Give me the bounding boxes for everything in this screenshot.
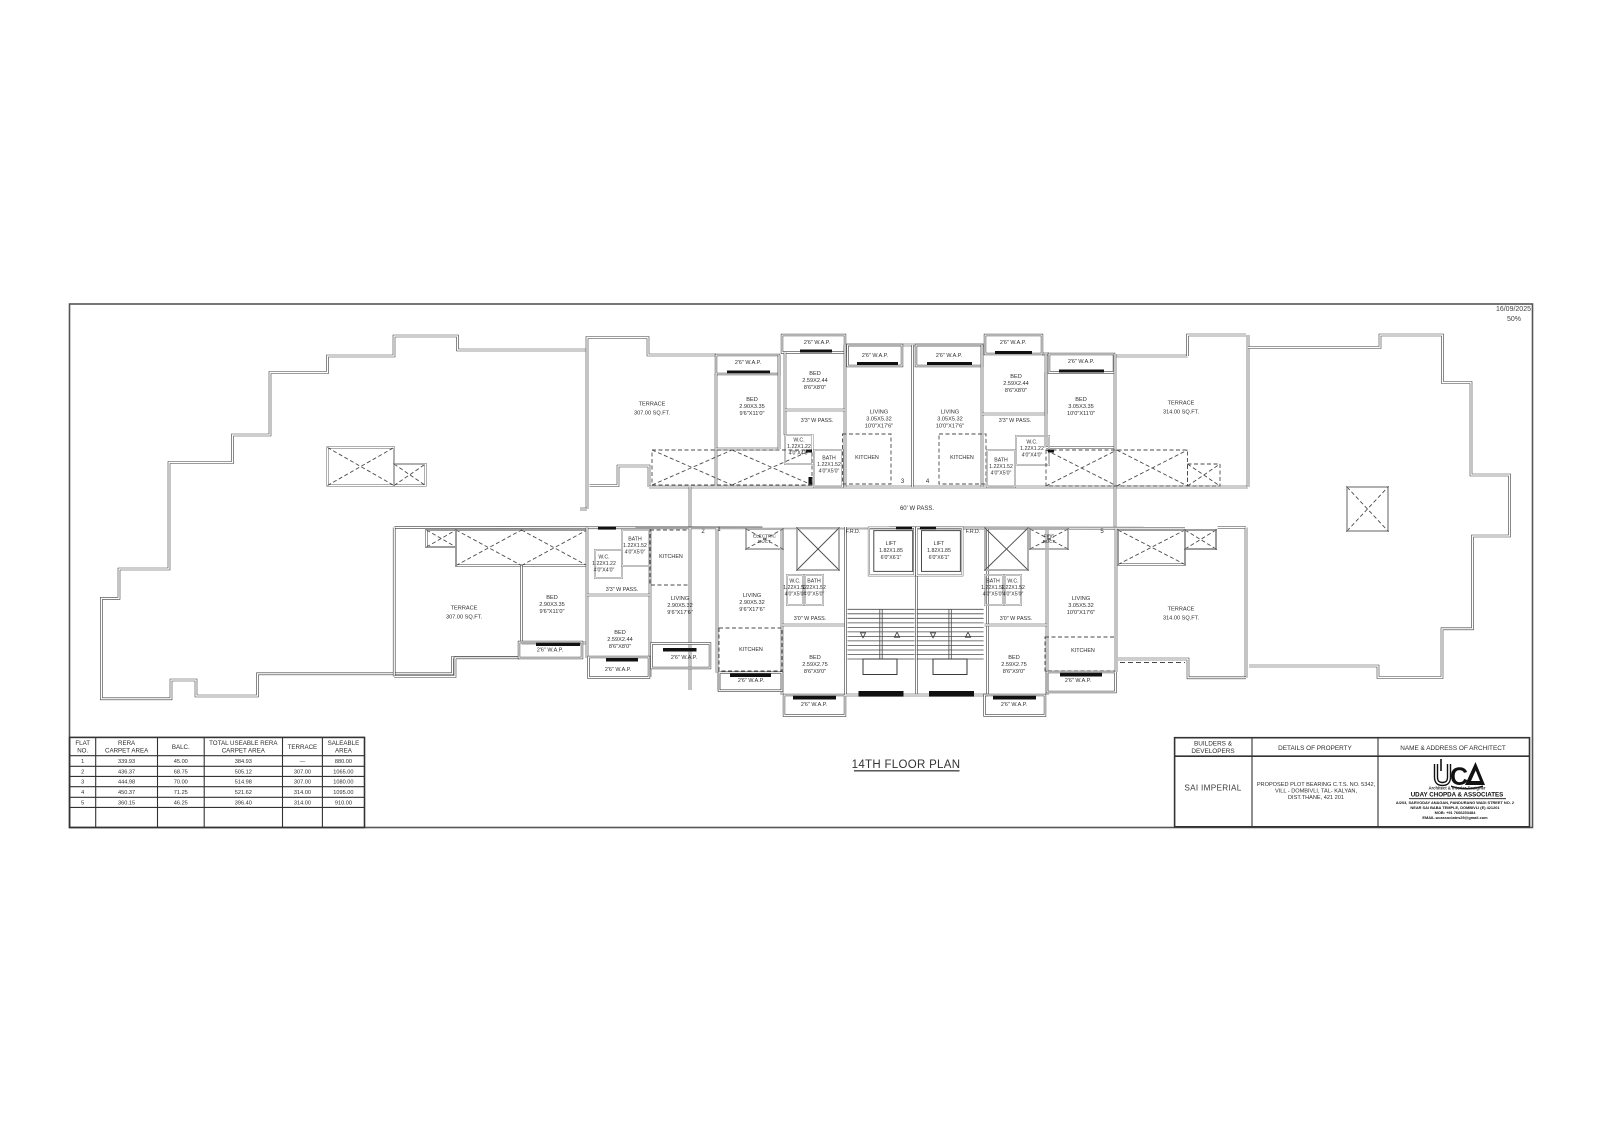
- svg-text:8'6"X9'0": 8'6"X9'0": [804, 669, 826, 675]
- svg-text:314.00: 314.00: [294, 790, 311, 796]
- svg-text:2.59X2.75: 2.59X2.75: [1001, 662, 1027, 668]
- svg-text:2'6" W.A.P.: 2'6" W.A.P.: [735, 360, 761, 366]
- svg-text:8'6"X8'0": 8'6"X8'0": [804, 385, 826, 391]
- svg-text:1.82X1.85: 1.82X1.85: [879, 548, 903, 554]
- svg-text:46.25: 46.25: [174, 800, 188, 806]
- svg-text:8'6"X8'0": 8'6"X8'0": [1005, 388, 1027, 394]
- svg-text:BED: BED: [809, 655, 821, 661]
- svg-text:10'0"X17'6": 10'0"X17'6": [1067, 610, 1096, 616]
- svg-text:1.22X1.52: 1.22X1.52: [1001, 585, 1025, 591]
- svg-text:2.59X2.44: 2.59X2.44: [1003, 381, 1029, 387]
- svg-text:3: 3: [81, 780, 84, 786]
- svg-text:BED: BED: [746, 397, 758, 403]
- svg-text:2.90X3.35: 2.90X3.35: [739, 404, 765, 410]
- svg-text:307.00 SQ.FT.: 307.00 SQ.FT.: [634, 411, 671, 417]
- svg-text:10'0"X11'0": 10'0"X11'0": [1067, 411, 1095, 417]
- svg-text:Architect & Interior Designer: Architect & Interior Designer: [1428, 786, 1485, 791]
- svg-text:307.00: 307.00: [294, 769, 311, 775]
- svg-text:TERRACE: TERRACE: [639, 402, 666, 408]
- svg-text:BED: BED: [809, 371, 821, 377]
- svg-text:396.40: 396.40: [235, 800, 252, 806]
- svg-text:2.90X5.32: 2.90X5.32: [667, 603, 693, 609]
- svg-text:4'0"X5'0": 4'0"X5'0": [625, 549, 646, 555]
- svg-text:CARPET AREA: CARPET AREA: [105, 748, 149, 755]
- svg-text:1.82X1.85: 1.82X1.85: [927, 548, 951, 554]
- svg-text:KITCHEN: KITCHEN: [659, 554, 683, 560]
- svg-text:60' W PASS.: 60' W PASS.: [900, 506, 934, 512]
- svg-text:W.C.: W.C.: [1007, 579, 1018, 585]
- svg-text:FIRE: FIRE: [1044, 534, 1054, 539]
- svg-text:2'6" W.A.P.: 2'6" W.A.P.: [1065, 678, 1091, 684]
- svg-text:1: 1: [81, 759, 84, 765]
- svg-text:339.93: 339.93: [118, 759, 135, 765]
- svg-text:514.98: 514.98: [235, 780, 252, 786]
- svg-text:2'6" W.A.P.: 2'6" W.A.P.: [862, 353, 888, 359]
- svg-text:LIFT: LIFT: [886, 541, 897, 547]
- svg-text:360.15: 360.15: [118, 800, 135, 806]
- svg-text:2'6" W.A.P.: 2'6" W.A.P.: [671, 655, 697, 661]
- svg-text:BATH: BATH: [822, 456, 836, 462]
- svg-text:2'6" W.A.P.: 2'6" W.A.P.: [537, 648, 563, 654]
- svg-text:1.22X1.52: 1.22X1.52: [802, 585, 826, 591]
- svg-text:SAI IMPERIAL: SAI IMPERIAL: [1184, 784, 1241, 793]
- svg-text:314.00 SQ.FT.: 314.00 SQ.FT.: [1163, 616, 1200, 622]
- svg-text:2'6" W.A.P.: 2'6" W.A.P.: [605, 667, 631, 673]
- svg-text:BED: BED: [546, 595, 558, 601]
- svg-text:5: 5: [81, 800, 84, 806]
- svg-text:3'0" W PASS.: 3'0" W PASS.: [1000, 616, 1033, 622]
- svg-text:BED: BED: [1008, 655, 1020, 661]
- svg-text:2: 2: [81, 769, 84, 775]
- svg-text:2'6" W.A.P.: 2'6" W.A.P.: [1000, 340, 1026, 346]
- svg-text:9'6"X11'0": 9'6"X11'0": [740, 411, 765, 417]
- svg-text:AREA: AREA: [335, 748, 353, 755]
- svg-text:10'0"X17'6": 10'0"X17'6": [936, 424, 965, 430]
- svg-text:LIVING: LIVING: [671, 596, 689, 602]
- svg-text:4'0"X5'0": 4'0"X5'0": [1003, 591, 1024, 597]
- svg-text:4'0"X5'0": 4'0"X5'0": [983, 591, 1004, 597]
- svg-text:910.00: 910.00: [335, 800, 352, 806]
- svg-text:DUCT: DUCT: [1043, 539, 1056, 544]
- svg-text:F.R.D.: F.R.D.: [846, 529, 860, 535]
- svg-text:FLAT: FLAT: [75, 740, 90, 747]
- svg-text:1.22X1.52: 1.22X1.52: [817, 462, 841, 468]
- svg-text:1095.00: 1095.00: [333, 790, 353, 796]
- svg-text:4'0"X4'0": 4'0"X4'0": [594, 567, 615, 573]
- svg-text:LIVING: LIVING: [870, 409, 888, 415]
- svg-text:KITCHEN: KITCHEN: [1071, 648, 1095, 654]
- svg-text:450.37: 450.37: [118, 790, 135, 796]
- svg-text:LIVING: LIVING: [941, 409, 959, 415]
- svg-text:2.59X2.44: 2.59X2.44: [802, 378, 828, 384]
- svg-text:RERA: RERA: [118, 740, 136, 747]
- svg-text:9'6"X11'0": 9'6"X11'0": [540, 609, 565, 615]
- svg-text:NAME & ADDRESS OF ARCHITECT: NAME & ADDRESS OF ARCHITECT: [1400, 745, 1506, 752]
- svg-text:4'0"X5'0": 4'0"X5'0": [991, 470, 1012, 476]
- svg-text:9'6"X17'6": 9'6"X17'6": [667, 610, 692, 616]
- svg-text:68.75: 68.75: [174, 769, 188, 775]
- svg-text:4'0"X5'0": 4'0"X5'0": [785, 591, 806, 597]
- svg-text:KITCHEN: KITCHEN: [855, 455, 879, 461]
- svg-text:14TH FLOOR PLAN: 14TH FLOOR PLAN: [852, 759, 961, 771]
- svg-text:KITCHEN: KITCHEN: [739, 647, 763, 653]
- svg-text:6'0"X6'1": 6'0"X6'1": [881, 555, 902, 561]
- svg-text:BATH: BATH: [807, 579, 821, 585]
- svg-text:CARPET AREA: CARPET AREA: [222, 748, 266, 755]
- svg-text:1.22X1.52: 1.22X1.52: [623, 543, 647, 549]
- svg-text:1.22X1.22: 1.22X1.22: [1020, 446, 1044, 452]
- svg-text:TERRACE: TERRACE: [288, 744, 318, 751]
- svg-text:LIVING: LIVING: [1072, 596, 1090, 602]
- svg-text:DEVELOPERS: DEVELOPERS: [1191, 748, 1234, 755]
- svg-text:2'6" W.A.P.: 2'6" W.A.P.: [738, 678, 764, 684]
- svg-text:2.59X2.75: 2.59X2.75: [802, 662, 828, 668]
- svg-text:SALEABLE: SALEABLE: [328, 740, 360, 747]
- svg-text:W.C.: W.C.: [1026, 440, 1037, 446]
- svg-text:3.05X3.35: 3.05X3.35: [1068, 404, 1094, 410]
- svg-text:4'0"X4'0": 4'0"X4'0": [789, 450, 810, 456]
- svg-text:4'0"X4'0": 4'0"X4'0": [1022, 452, 1043, 458]
- svg-text:3'3" W PASS.: 3'3" W PASS.: [606, 587, 639, 593]
- svg-text:W.C.: W.C.: [793, 438, 804, 444]
- svg-text:3.05X5.32: 3.05X5.32: [1068, 603, 1094, 609]
- svg-text:444.98: 444.98: [118, 780, 135, 786]
- svg-text:KITCHEN: KITCHEN: [950, 455, 974, 461]
- svg-text:2.59X2.44: 2.59X2.44: [607, 637, 633, 643]
- svg-text:BED: BED: [614, 630, 626, 636]
- svg-text:2'6" W.A.P.: 2'6" W.A.P.: [1068, 359, 1094, 365]
- svg-text:BED: BED: [1075, 397, 1087, 403]
- svg-text:71.25: 71.25: [174, 790, 188, 796]
- svg-text:1065.00: 1065.00: [333, 769, 353, 775]
- svg-text:307.00: 307.00: [294, 780, 311, 786]
- svg-text:16/09/2025: 16/09/2025: [1496, 306, 1531, 313]
- svg-text:8'6"X9'0": 8'6"X9'0": [1003, 669, 1025, 675]
- svg-text:DETAILS OF PROPERTY: DETAILS OF PROPERTY: [1278, 745, 1352, 752]
- svg-text:1.22X1.22: 1.22X1.22: [787, 444, 811, 450]
- svg-text:ELECTRIC: ELECTRIC: [753, 534, 776, 539]
- svg-text:BALC.: BALC.: [172, 744, 190, 751]
- svg-text:2'6" W.A.P.: 2'6" W.A.P.: [801, 702, 827, 708]
- svg-text:436.37: 436.37: [118, 769, 135, 775]
- svg-text:EMAIL:ucassociates29@gmail.com: EMAIL:ucassociates29@gmail.com: [1422, 815, 1488, 820]
- svg-text:BATH: BATH: [628, 537, 642, 543]
- svg-text:F.R.D.: F.R.D.: [966, 529, 980, 535]
- svg-text:NO.: NO.: [77, 748, 88, 755]
- svg-text:1.22X1.52: 1.22X1.52: [989, 464, 1013, 470]
- svg-text:3.05X5.32: 3.05X5.32: [937, 417, 963, 423]
- svg-text:VILL - DOMBIVLI, TAL- KALYAN,: VILL - DOMBIVLI, TAL- KALYAN,: [1275, 789, 1358, 795]
- svg-text:2.90X5.32: 2.90X5.32: [739, 600, 765, 606]
- svg-text:TERRACE: TERRACE: [1168, 607, 1195, 613]
- svg-text:10'0"X17'6": 10'0"X17'6": [865, 424, 894, 430]
- svg-text:UDAY CHOPDA & ASSOCIATES: UDAY CHOPDA & ASSOCIATES: [1411, 792, 1504, 799]
- svg-text:DUCT: DUCT: [758, 539, 771, 544]
- svg-text:45.00: 45.00: [174, 759, 188, 765]
- svg-text:384.93: 384.93: [235, 759, 252, 765]
- svg-text:4: 4: [81, 790, 84, 796]
- svg-text:1080.00: 1080.00: [333, 780, 353, 786]
- svg-text:1.22X1.22: 1.22X1.22: [592, 561, 616, 567]
- svg-text:BATH: BATH: [994, 458, 1008, 464]
- svg-text:BUILDERS &: BUILDERS &: [1194, 741, 1233, 748]
- svg-text:6'0"X6'1": 6'0"X6'1": [929, 555, 950, 561]
- svg-text:BATH: BATH: [986, 579, 1000, 585]
- svg-text:3'3" W PASS.: 3'3" W PASS.: [999, 418, 1032, 424]
- svg-text:LIVING: LIVING: [743, 593, 761, 599]
- svg-text:BED: BED: [1010, 374, 1022, 380]
- svg-text:3'3" W PASS.: 3'3" W PASS.: [801, 418, 834, 424]
- svg-text:—: —: [300, 759, 306, 765]
- svg-text:2'6" W.A.P.: 2'6" W.A.P.: [1001, 702, 1027, 708]
- svg-text:PROPOSED PLOT BEARING C.T.S. N: PROPOSED PLOT BEARING C.T.S. NO. 5342,: [1257, 782, 1376, 788]
- svg-text:TERRACE: TERRACE: [1168, 401, 1195, 407]
- svg-text:TOTAL USEABLE RERA: TOTAL USEABLE RERA: [209, 740, 278, 747]
- svg-text:3'0" W PASS.: 3'0" W PASS.: [794, 616, 827, 622]
- svg-text:4'0"X5'0": 4'0"X5'0": [819, 468, 840, 474]
- svg-text:DIST.THANE, 421 201: DIST.THANE, 421 201: [1288, 795, 1344, 801]
- svg-text:314.00 SQ.FT.: 314.00 SQ.FT.: [1163, 410, 1200, 416]
- svg-text:TERRACE: TERRACE: [451, 606, 478, 612]
- svg-text:9'6"X17'6": 9'6"X17'6": [739, 607, 764, 613]
- svg-text:70.00: 70.00: [174, 780, 188, 786]
- svg-text:2'6" W.A.P.: 2'6" W.A.P.: [936, 353, 962, 359]
- svg-text:LIFT: LIFT: [934, 541, 945, 547]
- svg-text:505.12: 505.12: [235, 769, 252, 775]
- svg-text:W.C.: W.C.: [598, 555, 609, 561]
- svg-text:521.62: 521.62: [235, 790, 252, 796]
- svg-text:8'6"X8'0": 8'6"X8'0": [609, 644, 631, 650]
- svg-text:307.00 SQ.FT.: 307.00 SQ.FT.: [446, 615, 483, 621]
- svg-text:W.C.: W.C.: [789, 579, 800, 585]
- svg-text:2'6" W.A.P.: 2'6" W.A.P.: [804, 340, 830, 346]
- svg-text:2.90X3.35: 2.90X3.35: [539, 602, 565, 608]
- svg-text:4'0"X5'0": 4'0"X5'0": [804, 591, 825, 597]
- svg-text:880.00: 880.00: [335, 759, 352, 765]
- svg-text:3.05X5.32: 3.05X5.32: [866, 417, 892, 423]
- svg-text:50%: 50%: [1507, 316, 1521, 323]
- svg-text:314.00: 314.00: [294, 800, 311, 806]
